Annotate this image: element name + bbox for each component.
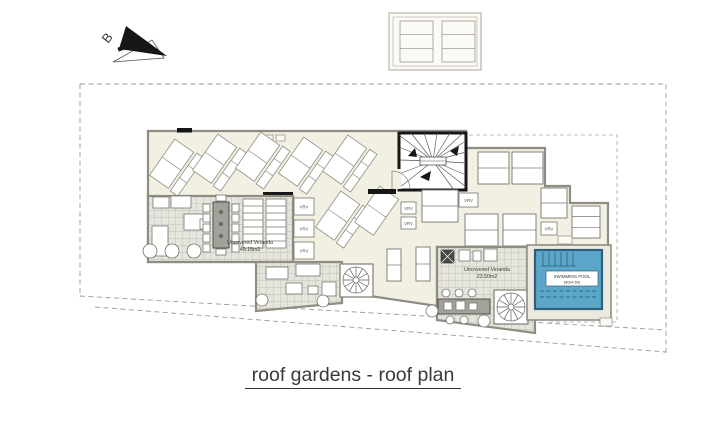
stair-core (392, 133, 466, 190)
pool-deck: SWIMMING POOL (40x4.60) (527, 245, 612, 326)
roof-plan-svg: B (0, 0, 705, 423)
spiral-stair-left (340, 264, 373, 297)
spiral-stair-right (494, 290, 528, 324)
svg-text:VRV: VRV (300, 227, 309, 232)
title-block: roof gardens - roof plan (245, 364, 461, 389)
svg-text:VRV: VRV (404, 221, 413, 226)
pool-name: SWIMMING POOL (554, 274, 591, 279)
pool-label: SWIMMING POOL (40x4.60) (546, 271, 598, 286)
vrv-unit: VRV (294, 220, 314, 237)
sun-lounger (422, 190, 458, 222)
section-marker-letter: B (99, 30, 116, 46)
sun-lounger (572, 206, 600, 238)
svg-text:VRV: VRV (300, 249, 309, 254)
veranda-left-name: Uncovered Veranda (227, 240, 273, 246)
pool-size: (40x4.60) (564, 280, 581, 285)
section-marker: B (99, 26, 167, 62)
drawing-title: roof gardens - roof plan (252, 364, 455, 386)
vrv-unit: VRV (294, 242, 314, 259)
vrv-unit: VRV (294, 198, 314, 215)
planters (143, 244, 201, 258)
svg-text:VRV: VRV (464, 198, 473, 203)
veranda-right-name: Uncovered Veranda (464, 267, 510, 273)
sun-lounger (416, 247, 430, 281)
sun-lounger (478, 152, 509, 184)
veranda-right: Uncovered Veranda 23.50m2 (426, 247, 535, 333)
roof-plan-drawing: B (0, 0, 705, 423)
veranda-left: Uncovered Veranda 49.15m2 (143, 195, 293, 262)
veranda-extension (256, 262, 342, 311)
sun-lounger (512, 152, 543, 184)
skylight-detail (389, 13, 481, 70)
veranda-left-area: 49.15m2 (240, 247, 260, 253)
sun-lounger (541, 188, 567, 218)
vrv-unit: VRV (459, 193, 478, 207)
vrv-unit: VRV (401, 202, 416, 214)
svg-text:VRV: VRV (545, 227, 554, 232)
svg-text:VRV: VRV (404, 206, 413, 211)
sun-lounger (503, 214, 536, 246)
svg-text:VRV: VRV (300, 205, 309, 210)
sun-lounger (465, 214, 498, 246)
veranda-right-area: 23.50m2 (477, 274, 497, 280)
vrv-unit: VRV (541, 222, 557, 235)
vrv-unit: VRV (401, 217, 416, 229)
sun-lounger (387, 249, 401, 281)
bbq-counter (441, 249, 497, 263)
